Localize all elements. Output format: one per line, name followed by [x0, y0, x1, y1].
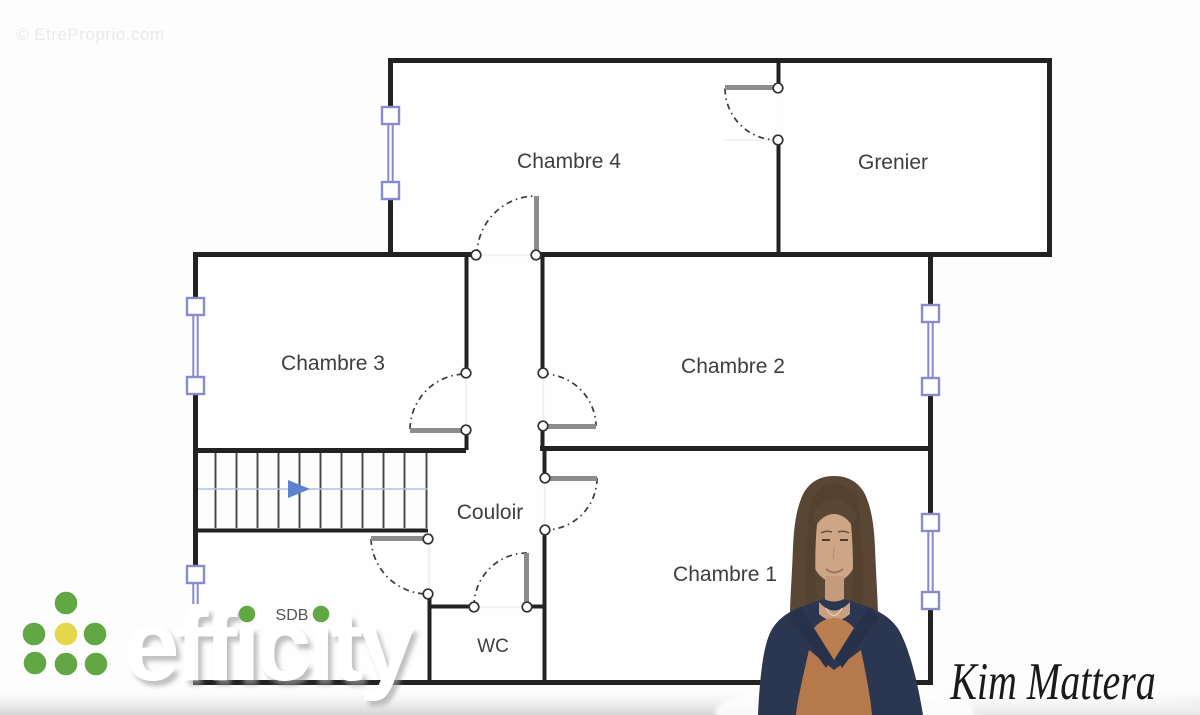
svg-text:Grenier: Grenier	[858, 151, 928, 174]
svg-text:WC: WC	[477, 636, 509, 657]
svg-text:© EtreProprio.com: © EtreProprio.com	[16, 25, 165, 44]
svg-text:Couloir: Couloir	[457, 501, 524, 524]
svg-text:Chambre 4: Chambre 4	[517, 150, 621, 173]
svg-text:effıcıty: effıcıty	[124, 590, 415, 702]
svg-text:Chambre 1: Chambre 1	[673, 563, 777, 586]
svg-text:Chambre 2: Chambre 2	[681, 355, 785, 378]
svg-text:Kim Mattera: Kim Mattera	[949, 653, 1155, 712]
svg-text:Chambre 3: Chambre 3	[281, 352, 385, 375]
